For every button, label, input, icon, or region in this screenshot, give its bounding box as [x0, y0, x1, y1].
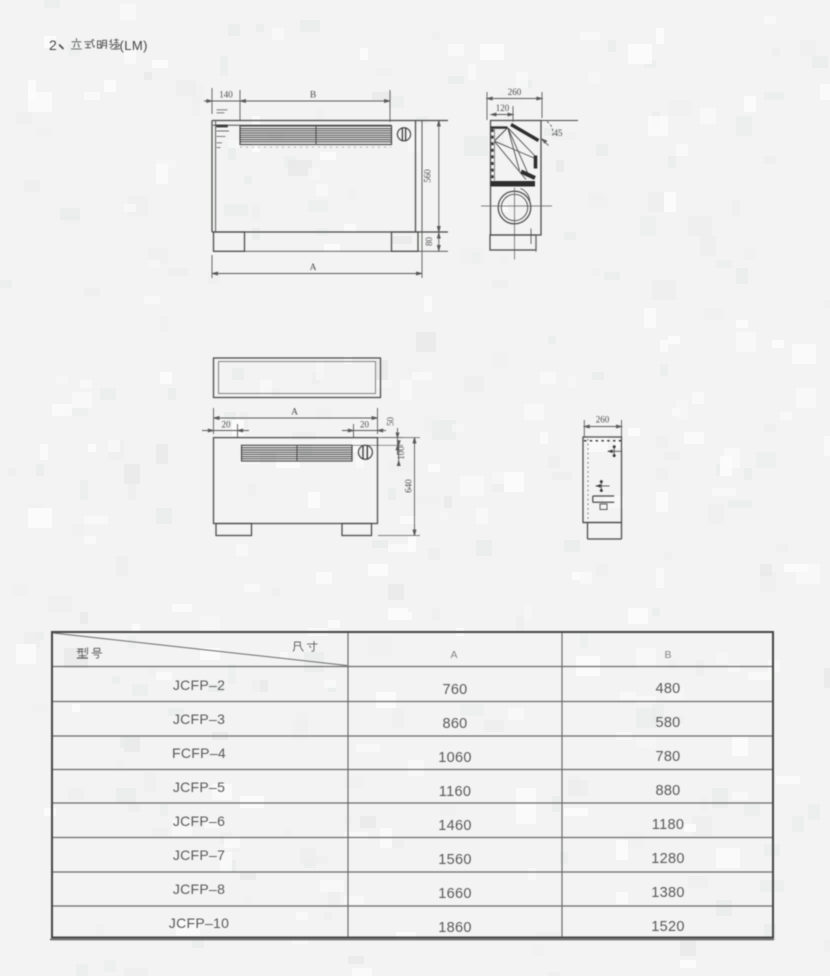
svg-text:480: 480: [655, 681, 680, 697]
svg-text:1660: 1660: [438, 886, 471, 902]
svg-text:260: 260: [596, 415, 610, 425]
svg-text:JCFP–5: JCFP–5: [173, 779, 225, 795]
svg-text:B: B: [664, 649, 671, 661]
svg-text:140: 140: [219, 90, 233, 100]
svg-text:1280: 1280: [651, 851, 684, 867]
svg-text:100: 100: [396, 446, 406, 460]
svg-text:JCFP–2: JCFP–2: [173, 677, 225, 693]
svg-text:45: 45: [554, 128, 564, 138]
svg-text:640: 640: [404, 479, 414, 493]
svg-text:580: 580: [655, 715, 680, 731]
svg-text:120: 120: [496, 103, 510, 113]
svg-text:2: 2: [49, 37, 57, 53]
svg-text:1380: 1380: [651, 885, 684, 901]
svg-text:20: 20: [360, 420, 370, 430]
svg-text:1060: 1060: [438, 750, 471, 766]
svg-text:20: 20: [222, 420, 232, 430]
svg-text:780: 780: [655, 749, 680, 765]
svg-text:1520: 1520: [651, 919, 684, 935]
svg-text:B: B: [310, 91, 316, 101]
svg-text:JCFP–7: JCFP–7: [173, 847, 225, 863]
svg-text:880: 880: [655, 783, 680, 799]
svg-text:560: 560: [423, 169, 433, 183]
svg-text:A: A: [310, 263, 317, 273]
svg-text:(LM): (LM): [120, 38, 148, 53]
svg-text:JCFP–3: JCFP–3: [173, 711, 225, 727]
svg-text:1160: 1160: [439, 784, 471, 800]
svg-text:JCFP–10: JCFP–10: [169, 915, 229, 931]
svg-text:1460: 1460: [438, 818, 471, 834]
svg-text:860: 860: [442, 716, 467, 732]
svg-text:A: A: [291, 408, 298, 418]
svg-text:JCFP–6: JCFP–6: [173, 813, 225, 829]
svg-text:A: A: [450, 649, 457, 661]
svg-text:260: 260: [508, 87, 522, 97]
svg-text:1860: 1860: [438, 920, 471, 936]
svg-text:1560: 1560: [438, 852, 471, 868]
svg-text:760: 760: [442, 682, 467, 698]
svg-text:1180: 1180: [652, 817, 684, 833]
svg-text:FCFP–4: FCFP–4: [172, 745, 226, 761]
svg-text:50: 50: [386, 417, 396, 427]
svg-text:80: 80: [424, 237, 434, 247]
svg-text:JCFP–8: JCFP–8: [173, 881, 225, 897]
